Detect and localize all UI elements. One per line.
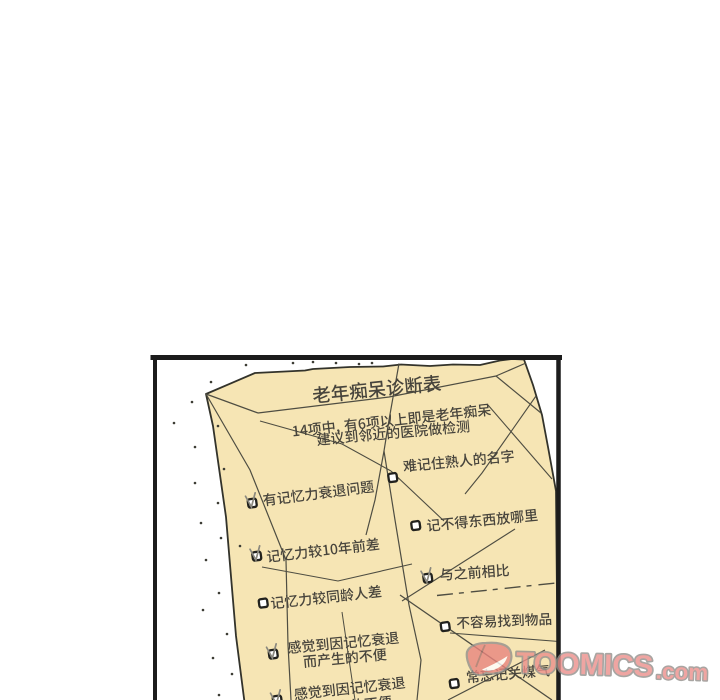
svg-text:TOOMICS: TOOMICS [516,647,654,684]
svg-text:.com: .com [655,659,708,686]
